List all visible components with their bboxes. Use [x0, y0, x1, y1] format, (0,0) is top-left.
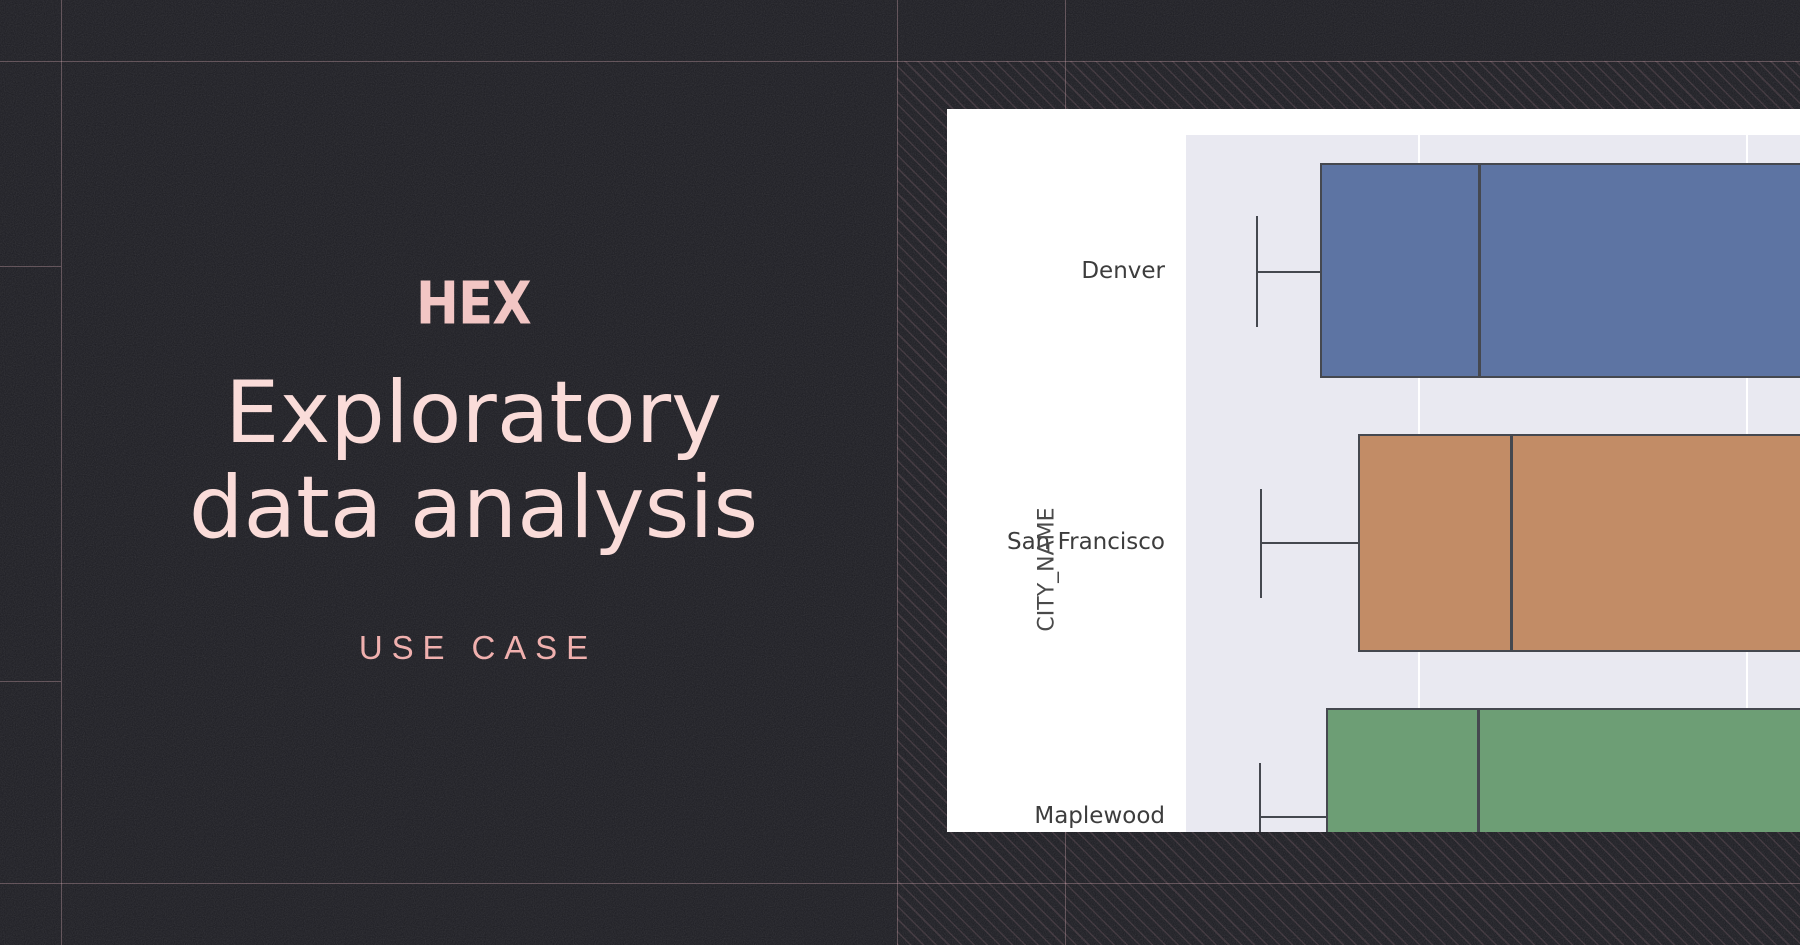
maplewood-box — [1326, 708, 1800, 832]
denver-label: Denver — [947, 260, 1165, 283]
maplewood-whisker-line — [1259, 816, 1326, 818]
page-title: Exploratory data analysis — [0, 366, 947, 556]
maplewood-whisker-cap — [1259, 763, 1261, 832]
denver-box — [1320, 163, 1800, 378]
left-panel: HEX Exploratory data analysis USE CASE — [0, 0, 947, 945]
chart-card: Denver San Francisco Maplewood CITY_NAME — [947, 109, 1800, 832]
san-francisco-box — [1358, 434, 1800, 652]
san-francisco-median-line — [1510, 434, 1513, 652]
denver-whisker-line — [1256, 271, 1322, 273]
hex-logo: HEX — [95, 275, 853, 334]
page-title-line1: Exploratory — [0, 366, 947, 461]
page-title-line2: data analysis — [0, 461, 947, 556]
maplewood-label: Maplewood — [947, 805, 1165, 828]
san-francisco-whisker-line — [1260, 542, 1358, 544]
maplewood-median-line — [1477, 708, 1480, 832]
y-axis-label: CITY_NAME — [1035, 507, 1060, 631]
slide-canvas: HEX Exploratory data analysis USE CASE D… — [0, 0, 1800, 945]
denver-median-line — [1478, 163, 1481, 378]
use-case-label: USE CASE — [0, 629, 947, 667]
